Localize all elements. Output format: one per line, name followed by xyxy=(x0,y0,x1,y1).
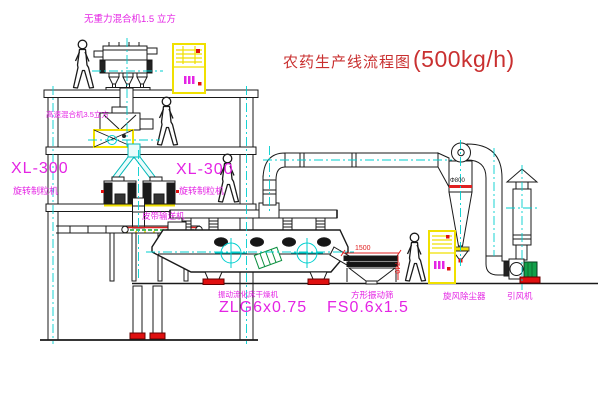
label-dryer-model: ZLG6x0.75 xyxy=(219,300,307,316)
label-cyclone: 旋风除尘器 xyxy=(443,292,486,301)
granulator-right-machine xyxy=(143,177,179,206)
exhaust-duct xyxy=(263,153,449,205)
dim-cyclone-diameter: Φ800 xyxy=(450,178,465,184)
process-flow-diagram: 无重力混合机1.5 立方 农药生产线流程图 (500kg/h) 高速混合机3.5… xyxy=(0,0,600,403)
dim-sieve-length: 1500 xyxy=(355,245,371,252)
vibrating-sieve xyxy=(341,250,401,284)
cyclone-separator xyxy=(449,143,511,275)
control-cabinet-top xyxy=(173,44,205,93)
label-dryer-name: 振动流化床干燥机 xyxy=(218,291,278,299)
person-figure-4 xyxy=(406,233,426,281)
label-granulator-right-model: XL-300 xyxy=(176,162,234,178)
person-figure-1 xyxy=(74,40,94,88)
label-top-mixer: 无重力混合机1.5 立方 xyxy=(84,15,176,25)
label-second-mixer: 高速混合机3.5立方 xyxy=(46,111,109,119)
dim-sieve-height: 740 xyxy=(393,262,400,274)
control-cabinet-ground xyxy=(429,231,455,283)
label-granulator-left-model: XL-300 xyxy=(11,161,69,177)
title-text: 农药生产线流程图 xyxy=(283,51,411,72)
label-fan: 引风机 xyxy=(507,292,533,301)
page-title: 农药生产线流程图 (500kg/h) xyxy=(283,46,515,73)
title-capacity: (500kg/h) xyxy=(413,46,515,73)
label-belt-conveyor: 皮带输送机 xyxy=(142,212,185,221)
label-granulator-left-name: 旋转制粒机 xyxy=(13,187,58,196)
label-granulator-right-name: 旋转制粒机 xyxy=(179,187,224,196)
label-sieve-model: FS0.6x1.5 xyxy=(327,300,409,316)
granulator-left-machine xyxy=(101,177,136,206)
person-figure-2 xyxy=(158,97,178,145)
gravity-free-mixer xyxy=(94,42,157,90)
